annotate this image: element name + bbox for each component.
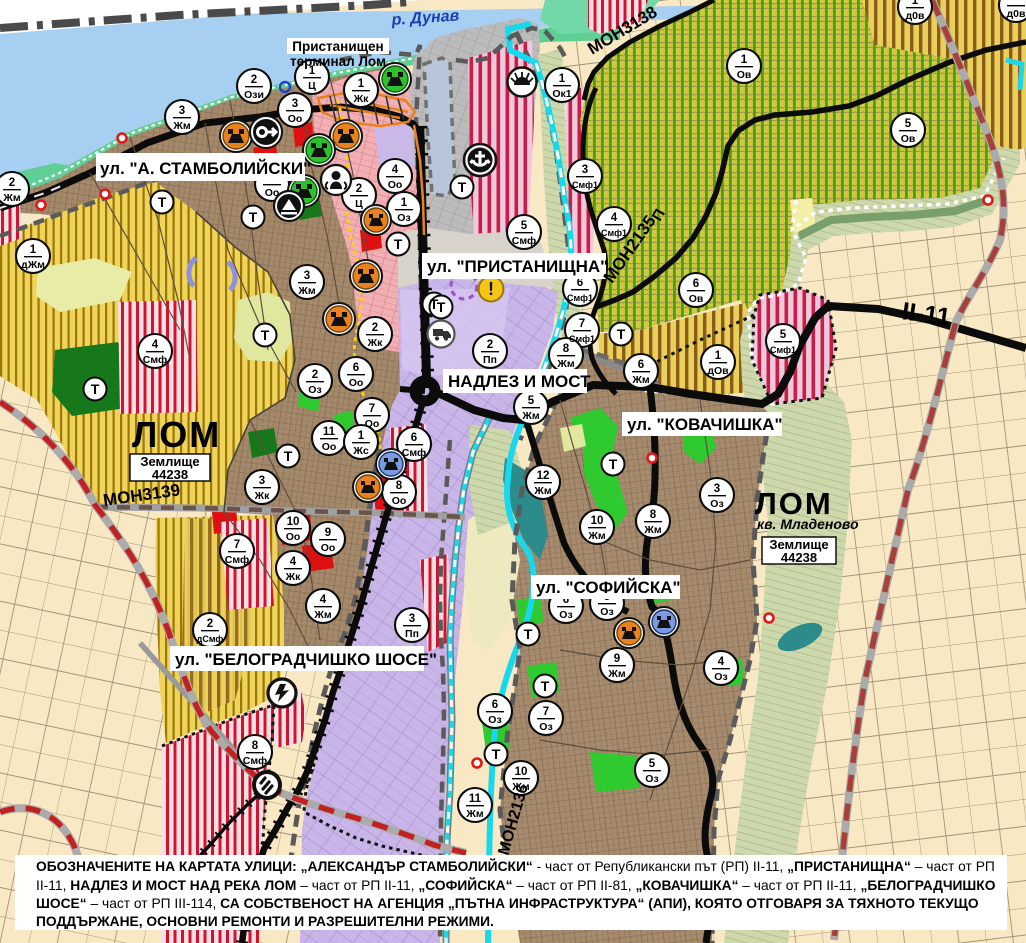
- svg-text:д0в: д0в: [1007, 8, 1026, 20]
- svg-text:Жм: Жм: [607, 668, 625, 680]
- svg-text:Жм: Жм: [2, 192, 20, 204]
- svg-text:Смф1: Смф1: [572, 180, 598, 190]
- svg-text:11: 11: [323, 426, 336, 438]
- svg-text:6: 6: [353, 362, 359, 374]
- svg-text:3: 3: [409, 613, 415, 625]
- svg-text:10: 10: [515, 766, 528, 778]
- svg-text:ул. "А. СТАМБОЛИЙСКИ": ул. "А. СТАМБОЛИЙСКИ": [100, 159, 311, 178]
- svg-text:!: !: [488, 279, 494, 299]
- svg-text:Жм: Жм: [313, 609, 331, 621]
- svg-text:2: 2: [356, 183, 362, 195]
- svg-text:6: 6: [411, 432, 417, 444]
- svg-text:44238: 44238: [781, 550, 817, 565]
- svg-text:Жк: Жк: [285, 571, 301, 583]
- svg-text:Ц: Ц: [355, 198, 363, 210]
- svg-text:Ц: Ц: [308, 80, 316, 92]
- svg-text:ПОДДЪРЖАНЕ, ОСНОВНИ РЕМОНТИ И: ПОДДЪРЖАНЕ, ОСНОВНИ РЕМОНТИ И РАЗРЕШИТЕЛ…: [36, 914, 494, 929]
- svg-text:ШОСЕ“ – част от РП III-114, СА: ШОСЕ“ – част от РП III-114, СА СОБСТВЕНО…: [36, 896, 979, 911]
- svg-text:1: 1: [358, 430, 365, 442]
- svg-text:Ов: Ов: [689, 293, 704, 305]
- svg-text:Оз: Оз: [397, 212, 410, 224]
- svg-text:Оз: Оз: [539, 721, 552, 733]
- svg-text:6: 6: [492, 699, 498, 711]
- svg-text:Оо: Оо: [322, 441, 337, 453]
- svg-text:3: 3: [259, 475, 265, 487]
- svg-text:II-11, НАДЛЕЗ И МОСТ НАД РЕКА: II-11, НАДЛЕЗ И МОСТ НАД РЕКА ЛОМ – част…: [36, 876, 996, 893]
- svg-text:ул. "СОФИЙСКА": ул. "СОФИЙСКА": [536, 578, 681, 597]
- svg-text:Т: Т: [541, 678, 550, 694]
- svg-text:дСмф: дСмф: [197, 634, 224, 644]
- svg-text:Оз: Оз: [488, 714, 501, 726]
- svg-text:Жк: Жк: [353, 93, 369, 105]
- svg-text:Оз: Оз: [559, 609, 572, 621]
- svg-text:ул. "БЕЛОГРАДЧИШКО ШОСЕ": ул. "БЕЛОГРАДЧИШКО ШОСЕ": [175, 650, 437, 669]
- svg-text:ОБОЗНАЧЕНИТЕ НА КАРТАТА УЛИЦИ:: ОБОЗНАЧЕНИТЕ НА КАРТАТА УЛИЦИ: „АЛЕКСАНД…: [36, 857, 995, 874]
- svg-text:Оо: Оо: [286, 531, 301, 543]
- svg-text:6: 6: [638, 359, 644, 371]
- svg-text:дОв: дОв: [707, 365, 729, 377]
- svg-text:7: 7: [543, 706, 549, 718]
- svg-text:2: 2: [312, 369, 318, 381]
- svg-text:Пристанищен: Пристанищен: [292, 39, 383, 54]
- svg-text:Оо: Оо: [321, 542, 336, 554]
- svg-text:1: 1: [358, 78, 365, 90]
- svg-text:Т: Т: [524, 626, 533, 642]
- svg-text:д0в: д0в: [906, 10, 926, 22]
- svg-text:Т: Т: [609, 456, 618, 472]
- svg-text:Т: Т: [284, 448, 293, 464]
- svg-text:8: 8: [252, 740, 259, 752]
- svg-text:Пп: Пп: [483, 354, 497, 366]
- svg-text:Жм: Жм: [533, 485, 551, 497]
- svg-text:Смф1: Смф1: [770, 345, 796, 355]
- svg-text:Пп: Пп: [405, 628, 419, 640]
- svg-text:Ози: Ози: [244, 89, 264, 101]
- svg-text:1: 1: [30, 244, 37, 256]
- svg-text:5: 5: [780, 329, 787, 341]
- svg-text:2: 2: [9, 177, 15, 189]
- svg-text:Смф1: Смф1: [569, 334, 595, 344]
- svg-text:НАДЛЕЗ И МОСТ: НАДЛЕЗ И МОСТ: [448, 372, 591, 391]
- svg-text:Смф: Смф: [243, 755, 267, 767]
- svg-text:3: 3: [582, 164, 588, 176]
- svg-text:Т: Т: [617, 326, 626, 342]
- svg-text:Жм: Жм: [643, 524, 661, 536]
- svg-text:10: 10: [287, 516, 300, 528]
- svg-text:Т: Т: [437, 299, 446, 315]
- svg-text:9: 9: [325, 527, 331, 539]
- svg-text:Оз: Оз: [710, 498, 723, 510]
- svg-text:2: 2: [207, 618, 213, 630]
- svg-text:8: 8: [396, 480, 403, 492]
- svg-text:12: 12: [537, 470, 550, 482]
- svg-text:ЛОМ: ЛОМ: [132, 414, 221, 455]
- svg-text:1: 1: [559, 73, 566, 85]
- svg-text:Ов: Ов: [901, 133, 916, 145]
- svg-text:Жк: Жк: [367, 337, 383, 349]
- svg-text:Смф: Смф: [143, 354, 167, 366]
- svg-text:Оо: Оо: [349, 377, 364, 389]
- svg-text:44238: 44238: [152, 467, 188, 482]
- svg-text:Смф1: Смф1: [567, 293, 593, 303]
- svg-text:4: 4: [392, 164, 399, 176]
- svg-text:Смф: Смф: [512, 235, 536, 247]
- svg-text:6: 6: [693, 278, 699, 290]
- svg-text:Жс: Жс: [352, 445, 368, 457]
- svg-text:5: 5: [521, 220, 528, 232]
- svg-text:5: 5: [649, 758, 656, 770]
- svg-text:2: 2: [251, 74, 257, 86]
- svg-text:1: 1: [912, 0, 919, 7]
- svg-text:Оо: Оо: [392, 495, 407, 507]
- svg-text:Жм: Жм: [172, 120, 190, 132]
- svg-text:5: 5: [905, 118, 912, 130]
- svg-text:4: 4: [320, 594, 327, 606]
- svg-text:Т: Т: [261, 327, 270, 343]
- svg-text:4: 4: [718, 656, 725, 668]
- svg-text:Т: Т: [91, 381, 100, 397]
- svg-text:Жм: Жм: [521, 410, 539, 422]
- svg-text:7: 7: [234, 539, 240, 551]
- svg-text:8: 8: [563, 343, 570, 355]
- svg-text:Жм: Жм: [297, 285, 315, 297]
- svg-text:ул. "ПРИСТАНИЩНА": ул. "ПРИСТАНИЩНА": [427, 257, 608, 276]
- svg-text:Т: Т: [394, 236, 403, 252]
- svg-text:Жм: Жм: [465, 808, 483, 820]
- svg-text:Оо: Оо: [365, 418, 380, 430]
- svg-text:Жм: Жм: [631, 374, 649, 386]
- svg-text:11: 11: [469, 793, 482, 805]
- svg-text:Жм: Жм: [587, 530, 605, 542]
- svg-text:Т: Т: [249, 209, 258, 225]
- svg-text:4: 4: [152, 339, 159, 351]
- svg-text:Оз: Оз: [308, 384, 321, 396]
- svg-text:Оз: Оз: [600, 606, 613, 618]
- svg-text:1: 1: [401, 197, 408, 209]
- svg-text:Оо: Оо: [388, 179, 403, 191]
- svg-text:7: 7: [369, 403, 375, 415]
- svg-text:кв. Младеново: кв. Младеново: [757, 516, 859, 532]
- svg-text:10: 10: [591, 515, 604, 527]
- svg-text:2: 2: [372, 322, 378, 334]
- svg-text:3: 3: [714, 483, 720, 495]
- svg-text:Смф1: Смф1: [601, 228, 627, 238]
- svg-text:Жм: Жм: [556, 358, 574, 370]
- svg-text:терминал Лом: терминал Лом: [290, 54, 386, 69]
- svg-text:Оз: Оз: [714, 671, 727, 683]
- svg-text:5: 5: [528, 395, 535, 407]
- svg-text:7: 7: [579, 318, 585, 330]
- svg-text:ул. "КОВАЧИШКА": ул. "КОВАЧИШКА": [627, 415, 783, 434]
- svg-text:Жк: Жк: [254, 490, 270, 502]
- svg-text:Оз: Оз: [645, 773, 658, 785]
- svg-text:3: 3: [179, 105, 185, 117]
- svg-text:2: 2: [487, 339, 493, 351]
- svg-text:1: 1: [715, 350, 722, 362]
- svg-text:4: 4: [290, 556, 297, 568]
- svg-text:1: 1: [741, 54, 748, 66]
- svg-text:3: 3: [292, 98, 298, 110]
- svg-text:Ок1: Ок1: [552, 88, 571, 100]
- svg-text:3: 3: [304, 270, 310, 282]
- svg-text:Т: Т: [158, 194, 167, 210]
- svg-text:8: 8: [650, 509, 657, 521]
- svg-text:Смф: Смф: [225, 554, 249, 566]
- svg-text:Оо: Оо: [288, 113, 303, 125]
- svg-text:Ов: Ов: [737, 69, 752, 81]
- svg-text:9: 9: [614, 653, 620, 665]
- svg-text:дЖм: дЖм: [21, 259, 45, 271]
- svg-text:4: 4: [611, 212, 618, 224]
- svg-text:Т: Т: [458, 179, 467, 195]
- svg-text:Т: Т: [492, 746, 501, 762]
